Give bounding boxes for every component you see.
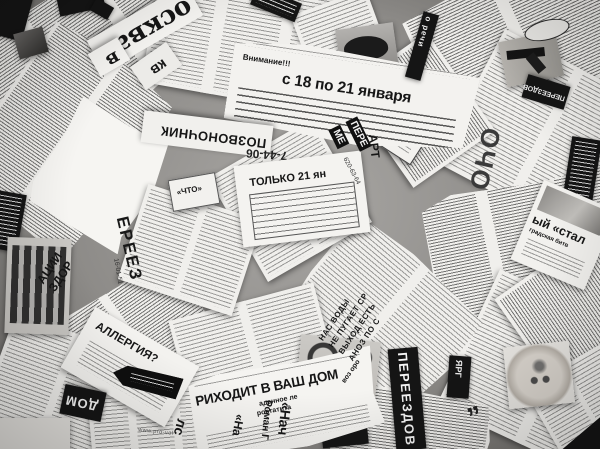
yarg-label: ЯРГ: [447, 355, 472, 398]
kv-text: кв: [147, 56, 170, 79]
me-text: МЕ: [328, 125, 349, 150]
chto-text: «ЧТО»: [176, 185, 203, 198]
attention-text: Внимание!!!: [242, 53, 291, 68]
moskva-v-letter: в: [102, 46, 123, 70]
schedule-lines: [249, 182, 360, 241]
pereezdov-small-text: ПЕРЕЕЗДОВ: [522, 82, 566, 102]
art-text: АРТ: [366, 134, 381, 159]
newspaper-collage-photo: осква в кв Внимание!!! с 18 по 21 января…: [0, 0, 600, 449]
dom-text: ДОМ: [64, 393, 99, 413]
phone-tiny-text: 16-01-51: [111, 258, 122, 285]
gray-photo-strip: [0, 418, 70, 449]
face-photo: [503, 341, 575, 410]
yarg-text: ЯРГ: [453, 360, 464, 378]
pereezdov-vertical-text: ПЕРЕЕЗДОВ: [395, 352, 418, 447]
ls-text: лс: [171, 417, 189, 437]
